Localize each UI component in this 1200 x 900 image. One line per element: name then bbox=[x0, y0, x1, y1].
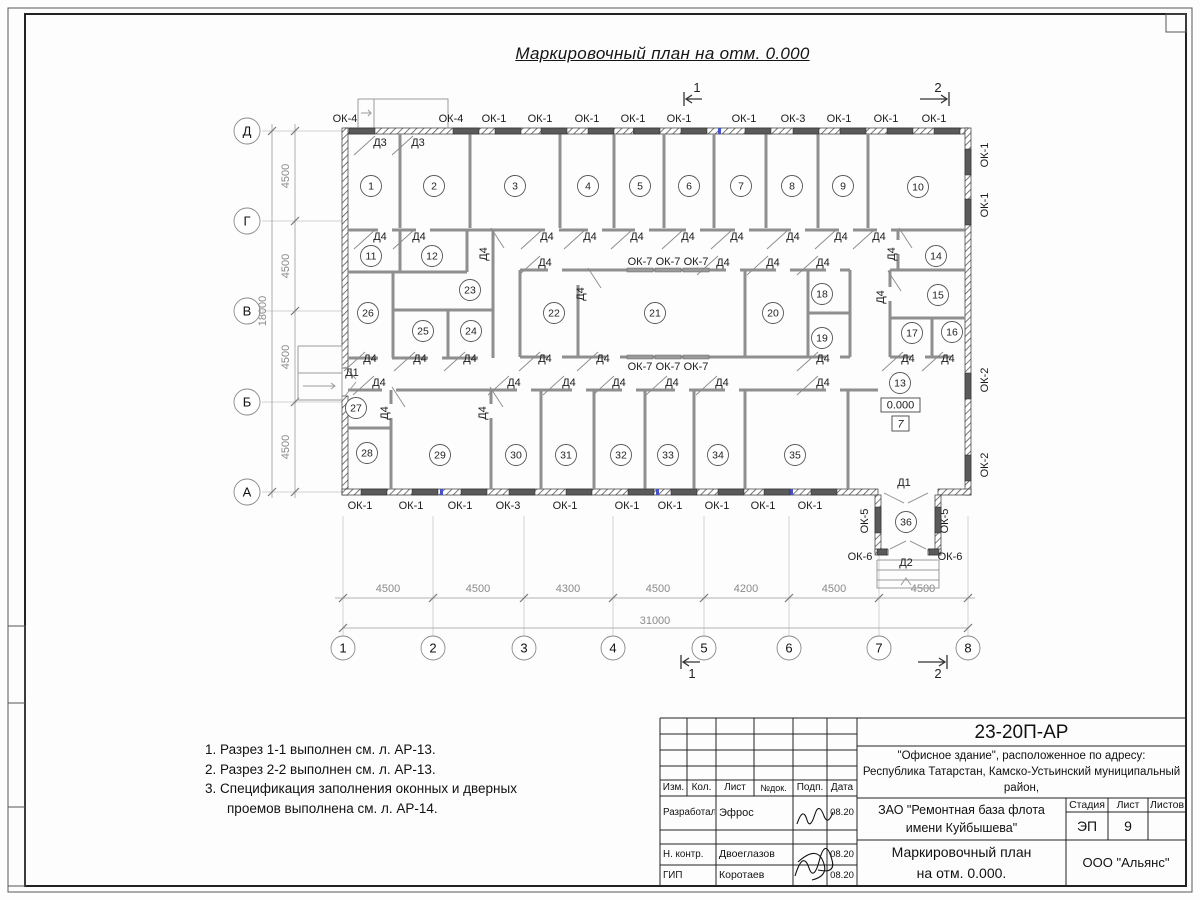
door-label: Д4 bbox=[477, 406, 489, 420]
door-label: Д4 bbox=[413, 353, 427, 365]
room-number: 3 bbox=[512, 181, 518, 193]
window bbox=[627, 355, 653, 359]
floor-type-mark: 7 bbox=[897, 419, 904, 431]
window-label: ОК-1 bbox=[979, 193, 991, 218]
room-marker: 3 bbox=[505, 176, 526, 197]
room-number: 1 bbox=[368, 181, 374, 193]
room-number: 15 bbox=[932, 290, 944, 302]
room-number: 12 bbox=[426, 251, 438, 263]
door-label: Д4 bbox=[562, 377, 576, 389]
row-role: ГИП bbox=[663, 865, 715, 886]
door-swing bbox=[519, 256, 540, 275]
window bbox=[875, 507, 881, 533]
window bbox=[965, 149, 971, 175]
door-swing bbox=[521, 230, 542, 249]
door-swing bbox=[543, 376, 564, 395]
organization: ООО "Альянс" bbox=[1066, 840, 1186, 886]
room-marker: 18 bbox=[812, 284, 833, 305]
window bbox=[718, 489, 744, 495]
door-label: Д4 bbox=[901, 353, 915, 365]
door-swing bbox=[646, 376, 667, 395]
room-number: 33 bbox=[662, 450, 674, 462]
row-role: Н. контр. bbox=[663, 844, 715, 865]
window bbox=[453, 128, 479, 134]
window bbox=[840, 128, 866, 134]
door-label: Д4 bbox=[596, 353, 610, 365]
window bbox=[764, 489, 790, 495]
axis-col-marker: 8 bbox=[964, 641, 971, 656]
doc-code: 23-20П-АР bbox=[857, 719, 1186, 746]
axis-row-marker: Г bbox=[243, 214, 250, 229]
room-number: 21 bbox=[649, 308, 661, 320]
window bbox=[671, 489, 697, 495]
corner-box bbox=[1166, 14, 1186, 32]
dimension-total: 18000 bbox=[257, 296, 269, 327]
room-marker: 4 bbox=[578, 176, 599, 197]
room-number: 29 bbox=[434, 450, 446, 462]
door-swing bbox=[767, 230, 788, 249]
room-number: 23 bbox=[464, 285, 476, 297]
room-marker: 9 bbox=[833, 176, 854, 197]
room-marker: 6 bbox=[679, 176, 700, 197]
room-marker: 33 bbox=[658, 445, 679, 466]
door-swing bbox=[611, 230, 632, 249]
room-number: 27 bbox=[350, 403, 362, 415]
row-name: Двоеглазов bbox=[719, 844, 791, 865]
window bbox=[811, 489, 837, 495]
window-label: ОК-1 bbox=[528, 113, 553, 125]
room-number: 5 bbox=[637, 181, 643, 193]
axis-row-marker: А bbox=[243, 485, 252, 500]
room-number: 36 bbox=[900, 517, 912, 529]
window-label: ОК-1 bbox=[751, 500, 776, 512]
room-marker: 22 bbox=[544, 303, 565, 324]
room-number: 25 bbox=[417, 326, 429, 338]
door-label: Д4 bbox=[575, 287, 587, 301]
door-label: Д4 bbox=[681, 231, 695, 243]
window bbox=[461, 489, 487, 495]
door-label: Д4 bbox=[730, 231, 744, 243]
window bbox=[683, 268, 709, 272]
window bbox=[541, 128, 567, 134]
window-label: ОК-1 bbox=[705, 500, 730, 512]
room-number: 10 bbox=[912, 182, 924, 194]
axis-col-marker: 7 bbox=[875, 641, 882, 656]
window-label: ОК-1 bbox=[922, 113, 947, 125]
door-swing bbox=[662, 230, 683, 249]
room-number: 32 bbox=[615, 450, 627, 462]
room-number: 16 bbox=[946, 327, 958, 339]
door-label: Д4 bbox=[665, 377, 679, 389]
room-number: 18 bbox=[816, 289, 828, 301]
section-mark: 2 bbox=[934, 666, 941, 681]
room-marker: 20 bbox=[763, 303, 784, 324]
door-label: Д1 bbox=[897, 477, 911, 489]
window bbox=[877, 549, 887, 555]
door-label: Д4 bbox=[834, 231, 848, 243]
window-label: ОК-7 bbox=[684, 361, 709, 373]
window bbox=[655, 355, 681, 359]
room-marker: 30 bbox=[506, 445, 527, 466]
axis-col-marker: 1 bbox=[339, 641, 346, 656]
note-line: 1. Разрез 1-1 выполнен см. л. АР-13. bbox=[205, 740, 585, 760]
room-number: 7 bbox=[738, 181, 744, 193]
room-marker: 29 bbox=[430, 445, 451, 466]
window bbox=[929, 549, 939, 555]
row-date: 08.20 bbox=[827, 796, 857, 830]
stage-value: ЭП bbox=[1066, 812, 1108, 840]
dimension-label: 4500 bbox=[280, 164, 292, 188]
room-number: 24 bbox=[465, 326, 477, 338]
col-data: Дата bbox=[827, 780, 857, 796]
row-name: Эфрос bbox=[719, 796, 791, 830]
window bbox=[965, 455, 971, 481]
door-label: Д4 bbox=[507, 377, 521, 389]
window-label: ОК-6 bbox=[848, 551, 873, 563]
window bbox=[683, 355, 709, 359]
dimension-label: 4500 bbox=[376, 583, 400, 595]
room-marker: 32 bbox=[611, 445, 632, 466]
window-label: ОК-1 bbox=[482, 113, 507, 125]
door-label: Д4 bbox=[372, 377, 386, 389]
window bbox=[681, 128, 707, 134]
window-label: ОК-1 bbox=[615, 500, 640, 512]
door-label: Д4 bbox=[716, 257, 730, 269]
dimension-total: 31000 bbox=[640, 615, 671, 627]
axis-col-marker: 2 bbox=[429, 641, 436, 656]
room-marker: 31 bbox=[556, 445, 577, 466]
window-label: ОК-1 bbox=[732, 113, 757, 125]
door-swing bbox=[882, 352, 903, 371]
row-date: 08.20 bbox=[827, 844, 857, 865]
door-swing bbox=[696, 376, 717, 395]
room-marker: 19 bbox=[812, 328, 833, 349]
door-label: Д4 bbox=[538, 257, 552, 269]
row-date: 08.20 bbox=[827, 865, 857, 886]
room-marker: 7 bbox=[731, 176, 752, 197]
door-swing bbox=[577, 352, 598, 371]
window-label: ОК-6 bbox=[938, 551, 963, 563]
window-label: ОК-1 bbox=[798, 500, 823, 512]
door-swing bbox=[392, 136, 413, 155]
sheet-title-line: на отм. 0.000. bbox=[857, 863, 1066, 884]
sheet-title-line: Маркировочный план bbox=[857, 842, 1066, 863]
axis-row-marker: В bbox=[243, 304, 252, 319]
door-label: Д4 bbox=[786, 231, 800, 243]
window bbox=[965, 373, 971, 399]
window-label: ОК-1 bbox=[658, 500, 683, 512]
door-swing bbox=[815, 230, 836, 249]
axis-col-marker: 6 bbox=[785, 641, 792, 656]
door-swing bbox=[488, 376, 509, 395]
door-label: Д2 bbox=[899, 557, 913, 569]
dimension-label: 4500 bbox=[911, 583, 935, 595]
window-label: ОК-7 bbox=[628, 256, 653, 268]
room-marker: 26 bbox=[358, 303, 379, 324]
dimension-label: 4500 bbox=[280, 345, 292, 369]
room-marker: 28 bbox=[357, 443, 378, 464]
room-number: 34 bbox=[712, 450, 724, 462]
window-label: ОК-3 bbox=[781, 113, 806, 125]
col-list: Лист bbox=[716, 780, 754, 796]
room-marker: 13 bbox=[890, 373, 911, 394]
window-label: ОК-1 bbox=[827, 113, 852, 125]
room-number: 11 bbox=[366, 251, 377, 263]
window bbox=[634, 128, 660, 134]
room-number: 28 bbox=[361, 448, 373, 460]
window-label: ОК-1 bbox=[621, 113, 646, 125]
room-marker: 16 bbox=[942, 322, 963, 343]
room-marker: 12 bbox=[422, 246, 443, 267]
sheets-label: Листов bbox=[1148, 798, 1186, 812]
door-swing bbox=[564, 230, 585, 249]
room-number: 8 bbox=[789, 181, 795, 193]
client-line: имени Куйбышева" bbox=[857, 819, 1066, 837]
window bbox=[965, 199, 971, 225]
window-label: ОК-1 bbox=[399, 500, 424, 512]
window bbox=[412, 489, 438, 495]
door-label: Д4 bbox=[875, 290, 887, 304]
address-line: Республика Татарстан, Камско-Устьинский … bbox=[857, 764, 1186, 796]
room-marker: 15 bbox=[928, 285, 949, 306]
door-swing bbox=[711, 230, 732, 249]
door-label: Д4 bbox=[766, 257, 780, 269]
col-ndok: №док. bbox=[754, 780, 793, 796]
dimension-label: 4500 bbox=[822, 583, 846, 595]
window bbox=[655, 268, 681, 272]
room-marker: 8 bbox=[782, 176, 803, 197]
window bbox=[566, 489, 592, 495]
room-marker: 25 bbox=[413, 321, 434, 342]
window bbox=[361, 489, 387, 495]
door-label: Д3 bbox=[411, 137, 425, 149]
axis-row-marker: Б bbox=[243, 395, 252, 410]
window-label: ОК-1 bbox=[553, 500, 578, 512]
window-label: ОК-1 bbox=[575, 113, 600, 125]
notes: 1. Разрез 1-1 выполнен см. л. АР-13. 2. … bbox=[205, 740, 585, 818]
sheet-number: 9 bbox=[1108, 812, 1148, 840]
window bbox=[349, 128, 375, 134]
room-number: 35 bbox=[789, 450, 801, 462]
door-label: Д4 bbox=[538, 353, 552, 365]
door-label: Д4 bbox=[373, 231, 387, 243]
door-marks: Д3Д3Д4Д4Д4Д4Д4Д4Д4Д4Д4Д4Д4Д4Д4Д4Д4Д4Д4Д4… bbox=[344, 136, 955, 569]
section-mark: 1 bbox=[688, 666, 695, 681]
door-label: Д4 bbox=[379, 406, 391, 420]
door-label: Д3 bbox=[373, 137, 387, 149]
room-marker: 17 bbox=[902, 323, 923, 344]
door-swing bbox=[519, 352, 540, 371]
door-swing bbox=[747, 256, 768, 275]
section-mark: 2 bbox=[934, 80, 941, 95]
col-podp: Подп. bbox=[793, 780, 827, 796]
room-marker: 11 bbox=[361, 246, 382, 267]
room-number: 22 bbox=[548, 308, 560, 320]
door-label: Д4 bbox=[816, 257, 830, 269]
window bbox=[628, 489, 654, 495]
col-izm: Изм. bbox=[660, 780, 687, 796]
door-swing bbox=[394, 352, 415, 371]
window bbox=[745, 128, 771, 134]
window bbox=[509, 489, 535, 495]
window-label: ОК-5 bbox=[859, 509, 871, 534]
drawing-sheet: ДГВБА12345678 45004500450045001800045004… bbox=[0, 0, 1200, 900]
room-marker: 36 bbox=[896, 512, 917, 533]
section-mark: 1 bbox=[693, 80, 700, 95]
window-label: ОК-7 bbox=[656, 256, 681, 268]
door-swing bbox=[393, 230, 414, 249]
room-marker: 24 bbox=[461, 321, 482, 342]
window-label: ОК-1 bbox=[667, 113, 692, 125]
room-number: 26 bbox=[362, 308, 374, 320]
room-number: 31 bbox=[560, 450, 572, 462]
plan-title: Маркировочный план на отм. 0.000 bbox=[460, 44, 865, 64]
dimension-label: 4500 bbox=[280, 435, 292, 459]
door-label: Д4 bbox=[941, 353, 955, 365]
door-label: Д4 bbox=[715, 377, 729, 389]
note-line: 3. Спецификация заполнения оконных и две… bbox=[205, 779, 585, 799]
dimension-label: 4500 bbox=[280, 254, 292, 278]
note-line: 2. Разрез 2-2 выполнен см. л. АР-13. bbox=[205, 760, 585, 780]
window-label: ОК-1 bbox=[979, 143, 991, 168]
room-number: 2 bbox=[431, 181, 437, 193]
dimension-label: 4200 bbox=[734, 583, 758, 595]
door-label: Д1 bbox=[345, 367, 359, 379]
door-label: Д4 bbox=[886, 247, 898, 261]
window bbox=[887, 128, 913, 134]
door-label: Д4 bbox=[816, 353, 830, 365]
room-marker: 5 bbox=[630, 176, 651, 197]
room-number: 14 bbox=[930, 251, 942, 263]
room-number: 19 bbox=[816, 333, 828, 345]
window-label: ОК-4 bbox=[439, 113, 464, 125]
room-marker: 14 bbox=[926, 246, 947, 267]
window-label: ОК-1 bbox=[348, 500, 373, 512]
room-number: 6 bbox=[686, 181, 692, 193]
sheets-number bbox=[1148, 812, 1186, 840]
col-kol: Кол. bbox=[687, 780, 716, 796]
address-line: "Офисное здание", расположенное по адрес… bbox=[857, 748, 1186, 764]
note-line: проемов выполнена см. л. АР-14. bbox=[205, 799, 585, 819]
window bbox=[495, 128, 521, 134]
client-line: ЗАО "Ремонтная база флота bbox=[857, 801, 1066, 819]
row-name: Коротаев bbox=[719, 865, 791, 886]
elevation-mark: 0.000 bbox=[887, 400, 915, 412]
window-label: ОК-3 bbox=[496, 500, 521, 512]
room-marker: 1 bbox=[361, 176, 382, 197]
door-label: Д4 bbox=[872, 231, 886, 243]
window-label: ОК-7 bbox=[684, 256, 709, 268]
room-marker: 10 bbox=[908, 177, 929, 198]
window-label: ОК-2 bbox=[979, 453, 991, 478]
door-label: Д4 bbox=[816, 377, 830, 389]
dimension-label: 4300 bbox=[556, 583, 580, 595]
axis-row-marker: Д bbox=[243, 124, 252, 139]
dimension-label: 4500 bbox=[466, 583, 490, 595]
room-number: 4 bbox=[585, 181, 591, 193]
door-swing bbox=[354, 136, 375, 155]
room-number: 9 bbox=[840, 181, 846, 193]
axis-col-marker: 3 bbox=[520, 641, 527, 656]
room-marker: 34 bbox=[708, 445, 729, 466]
room-marker: 23 bbox=[460, 280, 481, 301]
axis-col-marker: 5 bbox=[700, 641, 707, 656]
window bbox=[588, 128, 614, 134]
window-label: ОК-7 bbox=[628, 361, 653, 373]
door-label: Д4 bbox=[630, 231, 644, 243]
door-label: Д4 bbox=[478, 247, 490, 261]
window-label: ОК-1 bbox=[874, 113, 899, 125]
row-role: Разработал bbox=[663, 796, 715, 830]
door-label: Д4 bbox=[363, 353, 377, 365]
window-label: ОК-2 bbox=[979, 368, 991, 393]
window-label: ОК-1 bbox=[448, 500, 473, 512]
door-label: Д4 bbox=[612, 377, 626, 389]
door-swing bbox=[853, 230, 874, 249]
door-swing bbox=[797, 376, 818, 395]
door-label: Д4 bbox=[412, 231, 426, 243]
window bbox=[935, 507, 941, 533]
window bbox=[627, 268, 653, 272]
door-label: Д4 bbox=[463, 353, 477, 365]
stage-label: Стадия bbox=[1066, 798, 1108, 812]
room-marker: 35 bbox=[785, 445, 806, 466]
room-number: 13 bbox=[894, 378, 906, 390]
sheet-label: Лист bbox=[1108, 798, 1148, 812]
room-number: 30 bbox=[510, 450, 522, 462]
room-marker: 27 bbox=[346, 398, 367, 419]
door-swing bbox=[593, 376, 614, 395]
window bbox=[793, 128, 819, 134]
door-label: Д4 bbox=[540, 231, 554, 243]
window-label: ОК-7 bbox=[656, 361, 681, 373]
dimension-label: 4500 bbox=[646, 583, 670, 595]
room-number: 17 bbox=[906, 328, 918, 340]
axis-col-marker: 4 bbox=[609, 641, 616, 656]
room-marker: 21 bbox=[645, 303, 666, 324]
room-number: 20 bbox=[767, 308, 779, 320]
window bbox=[934, 128, 960, 134]
room-marker: 2 bbox=[424, 176, 445, 197]
window-label: ОК-4 bbox=[333, 113, 358, 125]
door-label: Д4 bbox=[583, 231, 597, 243]
